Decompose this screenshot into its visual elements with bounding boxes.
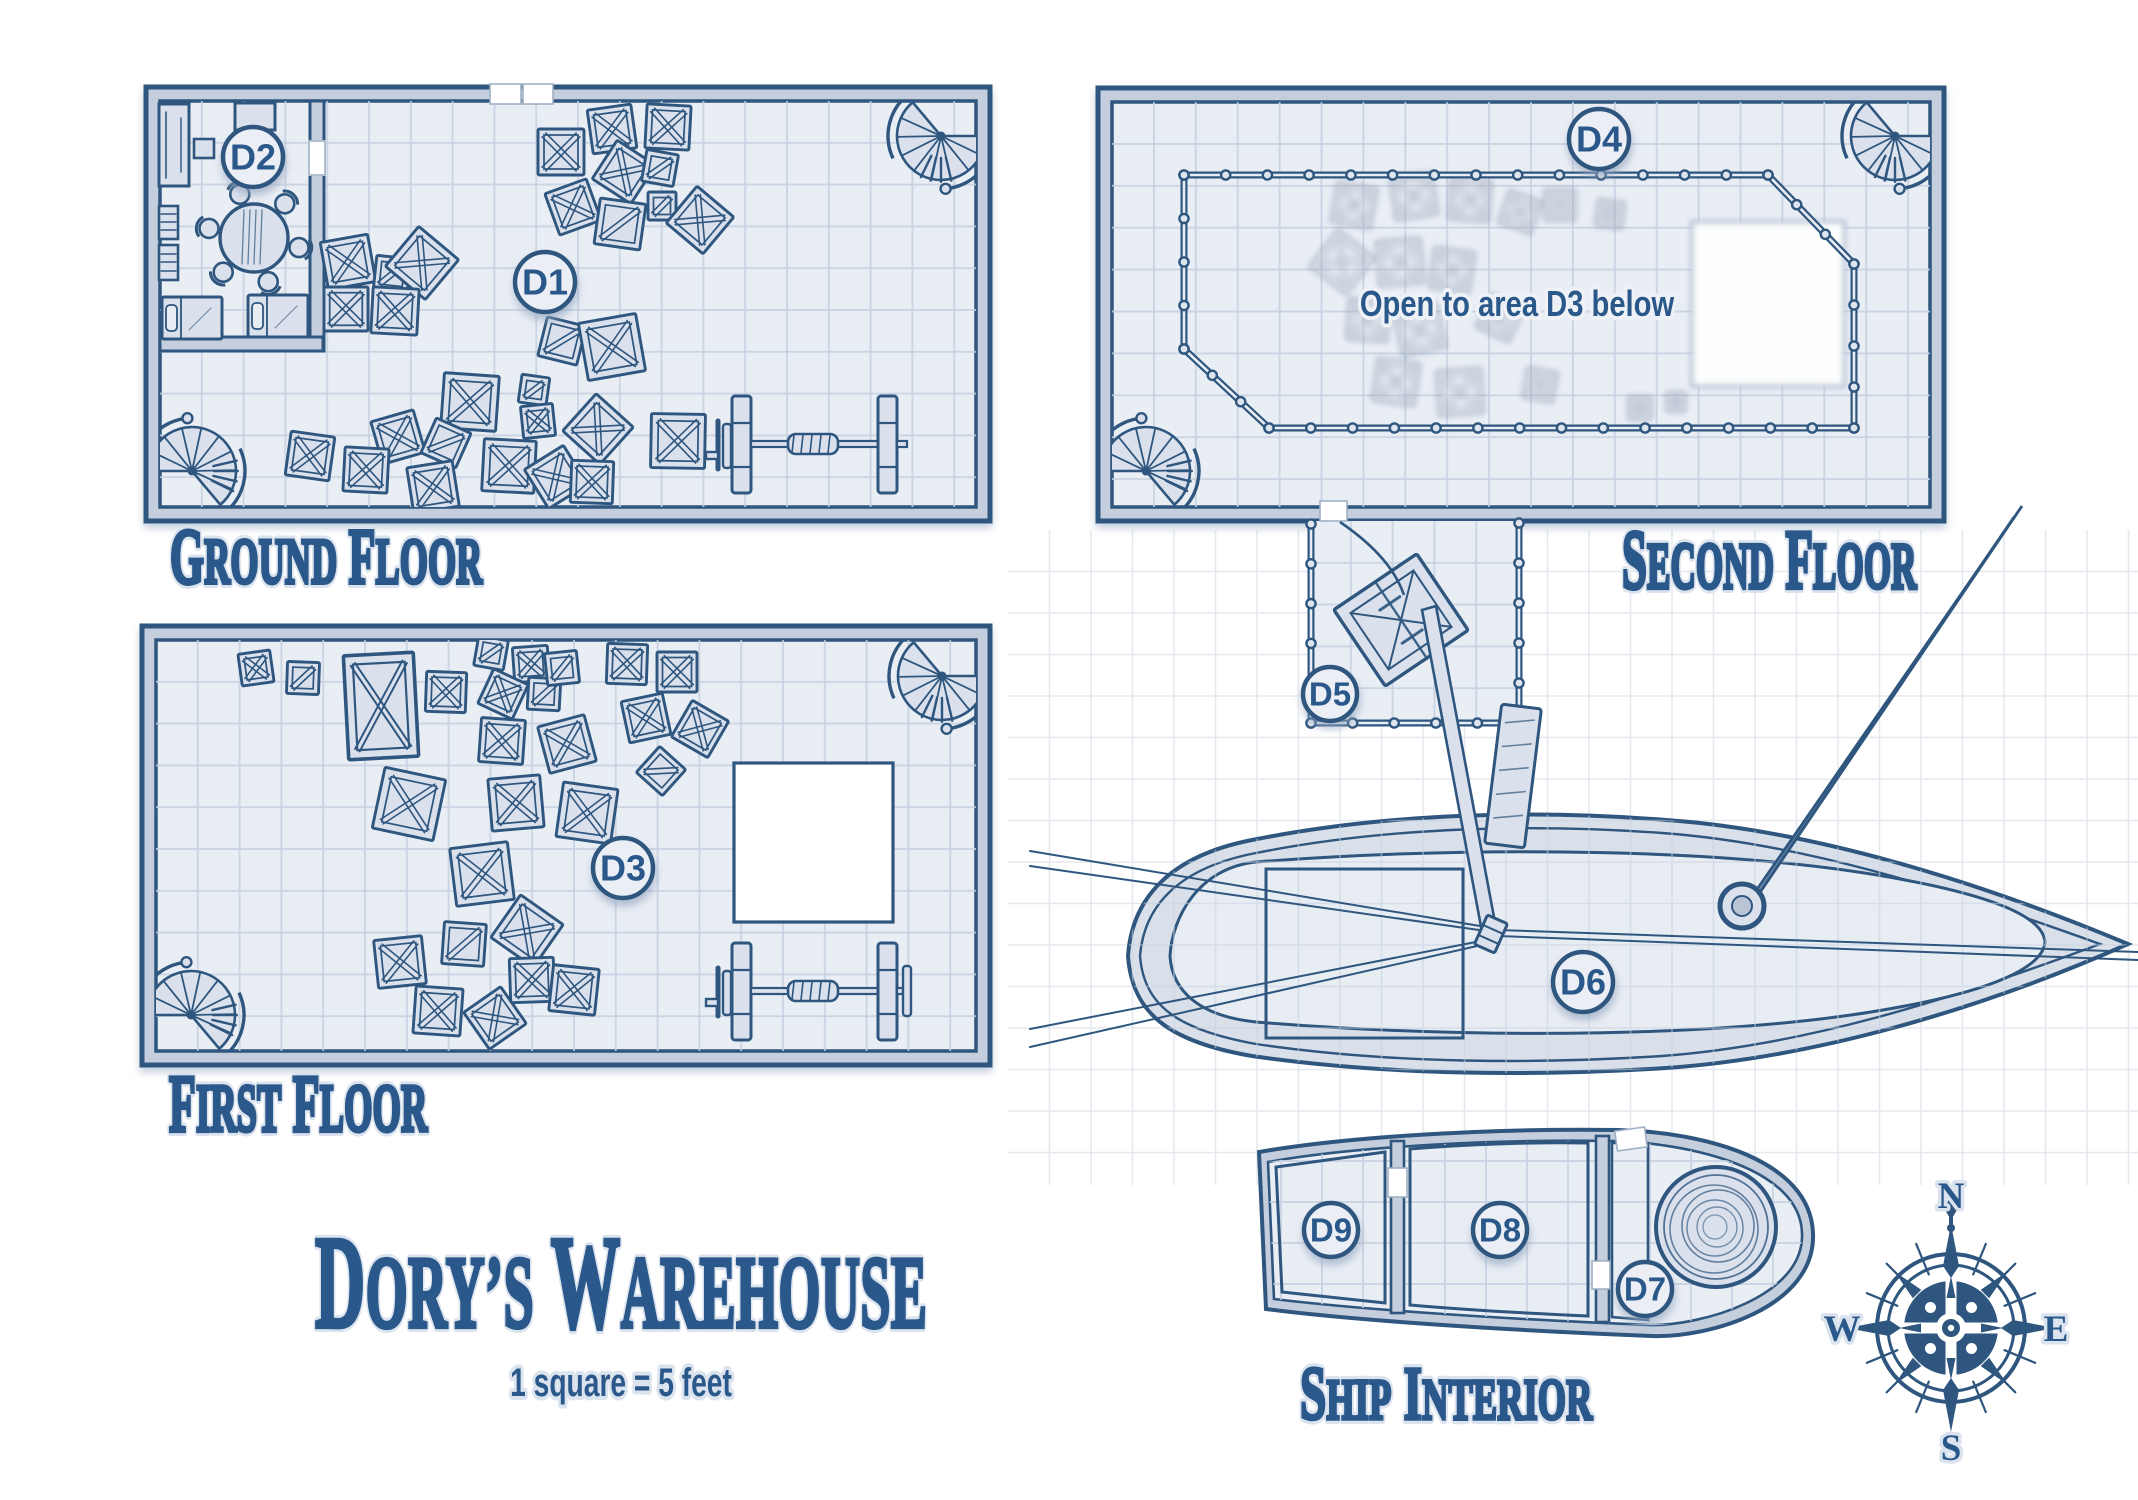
svg-text:D3: D3 [600,848,646,889]
svg-text:D5: D5 [1309,676,1351,713]
svg-text:D8: D8 [1479,1212,1521,1249]
svg-text:W: W [1824,1309,1861,1350]
svg-text:N: N [1938,1176,1965,1217]
svg-text:D9: D9 [1310,1212,1352,1249]
svg-text:E: E [2044,1309,2069,1350]
svg-text:D1: D1 [522,262,568,303]
svg-text:D6: D6 [1560,962,1606,1003]
svg-text:FIRST FLOOR: FIRST FLOOR [169,1059,428,1150]
svg-text:D7: D7 [1624,1271,1666,1308]
svg-text:S: S [1941,1428,1962,1469]
svg-text:GROUND FLOOR: GROUND FLOOR [170,512,483,600]
svg-text:D2: D2 [230,137,276,178]
svg-text:D4: D4 [1576,119,1622,160]
svg-text:1 square = 5 feet: 1 square = 5 feet [510,1361,732,1405]
svg-text:Open to area D3 below: Open to area D3 below [1360,283,1675,324]
